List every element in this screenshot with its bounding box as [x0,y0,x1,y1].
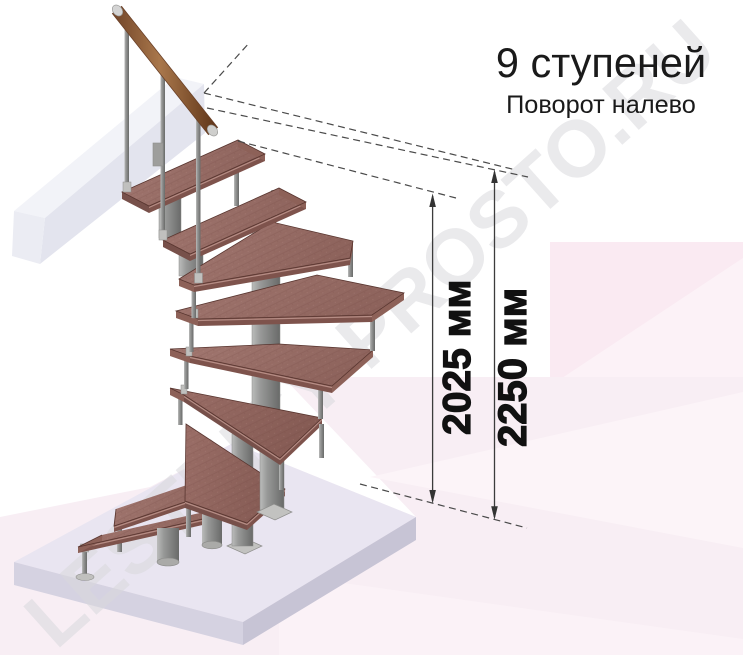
svg-text:2025 мм: 2025 мм [436,280,479,435]
svg-text:9 ступеней: 9 ступеней [496,39,706,86]
svg-text:2250 мм: 2250 мм [491,288,535,447]
svg-text:Поворот налево: Поворот налево [506,91,696,119]
